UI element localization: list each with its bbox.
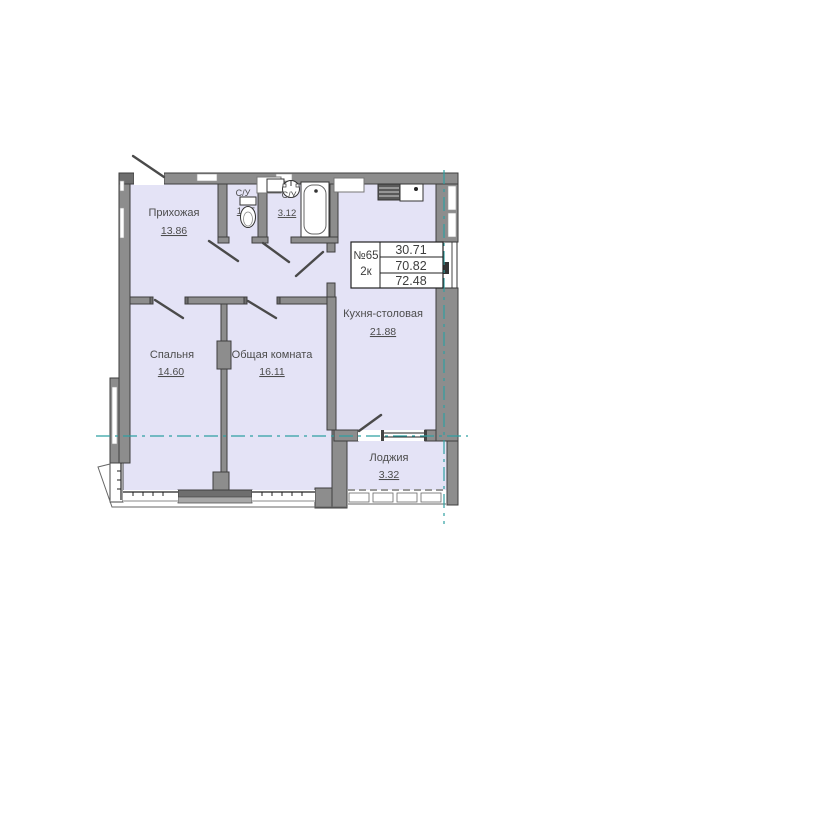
room-area-bedroom: 14.60 xyxy=(158,366,184,378)
room-area-hallway: 13.86 xyxy=(161,225,187,237)
wall-bath-bottom xyxy=(252,237,268,243)
wall-pilaster xyxy=(213,472,229,492)
loggia-railing-post xyxy=(373,493,393,502)
wall-hall-kitchen xyxy=(327,243,335,252)
wall-window-pier xyxy=(178,497,252,503)
wall-notch xyxy=(448,213,456,237)
room-area-loggia: 3.32 xyxy=(379,469,400,481)
unit-rooms-type: 2к xyxy=(360,266,372,278)
unit-number: №65 xyxy=(353,250,378,262)
vent-shaft xyxy=(334,178,364,192)
unit-living-area: 30.71 xyxy=(395,243,426,257)
wall-bedroom-living xyxy=(221,304,227,492)
wall-notch xyxy=(448,186,456,210)
room-name-bedroom: Спальня xyxy=(150,349,194,361)
loggia-railing-post xyxy=(349,493,369,502)
room-name-hallway: Прихожая xyxy=(149,207,200,219)
unit-total-area: 72.48 xyxy=(395,274,426,288)
wall-notch xyxy=(120,208,124,238)
floor-main xyxy=(130,184,436,430)
door-jamb xyxy=(381,430,384,441)
floor-bedrooms xyxy=(130,430,334,492)
room-name-kitchen: Кухня-столовая xyxy=(343,308,423,320)
room-name-living: Общая комната xyxy=(232,349,314,361)
wall-bath-bottom xyxy=(218,237,229,243)
wall-pilaster xyxy=(217,341,231,369)
door-jamb xyxy=(185,297,188,304)
wall-right-lower xyxy=(436,288,458,441)
room-area-kitchen: 21.88 xyxy=(370,326,396,338)
room-name-wc2: С/У xyxy=(282,190,297,200)
unit-info-box: №65 2к 30.71 70.82 72.48 xyxy=(351,242,443,288)
wall-notch xyxy=(120,181,124,191)
wall-toilet-left xyxy=(218,184,227,237)
loggia-railing-post xyxy=(397,493,417,502)
kitchen-sink-icon xyxy=(400,184,423,201)
floor-plan: 1.25 xyxy=(0,0,828,828)
bathtub-icon xyxy=(301,182,329,237)
wall-hall-rooms xyxy=(185,297,247,304)
wall-window-pier xyxy=(178,490,252,497)
wall-living-kitchen xyxy=(327,297,336,430)
room-name-wc1: С/У xyxy=(236,188,251,198)
floor-corner xyxy=(123,463,130,492)
wall-notch xyxy=(197,174,217,181)
wall-loggia-right xyxy=(447,441,458,505)
door-jamb xyxy=(277,297,280,304)
loggia-railing-post xyxy=(421,493,441,502)
room-area-wc2: 3.12 xyxy=(278,208,297,219)
unit-floor-area: 70.82 xyxy=(395,259,426,273)
stove-icon xyxy=(378,184,400,200)
floor-loggia xyxy=(347,441,447,490)
wall-hall-kitchen xyxy=(327,283,335,297)
door-jamb xyxy=(244,297,247,304)
wall-loggia-left xyxy=(332,430,347,508)
room-area-living: 16.11 xyxy=(259,366,285,378)
wall-bath-bottom xyxy=(291,237,338,243)
wall-hall-rooms xyxy=(277,297,335,304)
toilet-icon xyxy=(240,197,256,228)
room-name-loggia: Лоджия xyxy=(370,452,409,464)
door-jamb xyxy=(150,297,153,304)
